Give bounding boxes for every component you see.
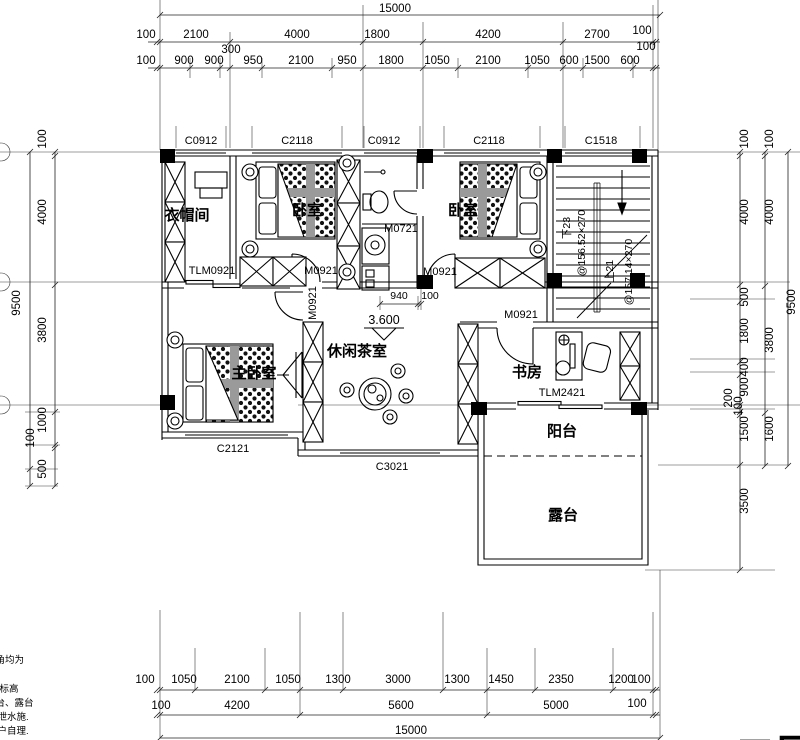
cabinet-icon bbox=[240, 257, 273, 286]
opening-label: C1518 bbox=[585, 135, 617, 147]
dimension-label: 2100 bbox=[475, 55, 501, 67]
opening-label: C0912 bbox=[368, 135, 400, 147]
dimension-label: 950 bbox=[337, 55, 356, 67]
dimension-label: 4000 bbox=[764, 199, 776, 225]
dimension-label: 9500 bbox=[786, 289, 798, 315]
dimension-label: 5000 bbox=[543, 700, 569, 712]
cabinet-icon bbox=[458, 324, 478, 364]
dimension-label: 1500 bbox=[739, 416, 751, 442]
dimension-label: 100 bbox=[421, 290, 439, 302]
stool-icon bbox=[530, 164, 546, 180]
corner-note-label: 层标高 bbox=[0, 683, 19, 695]
dimension-label: 3800 bbox=[764, 327, 776, 353]
stair-note-label: @157.14×270 bbox=[623, 239, 635, 306]
dimension-label: 100 bbox=[136, 29, 155, 41]
cabinet-icon bbox=[620, 366, 640, 400]
column-marker bbox=[632, 149, 647, 163]
dimension-label: 1200 bbox=[608, 674, 634, 686]
dimension-label: 100 bbox=[632, 25, 651, 37]
room-label: 卧室 bbox=[448, 201, 478, 219]
dimension-label: 15000 bbox=[395, 725, 427, 737]
column-marker bbox=[631, 402, 647, 415]
floor-plan-canvas: 1500010021004000180042002700100300100100… bbox=[0, 0, 800, 740]
staircase bbox=[556, 166, 650, 318]
dimension-label: 3500 bbox=[739, 488, 751, 514]
dimension-label: 1050 bbox=[424, 55, 450, 67]
dimension-ticks bbox=[27, 12, 791, 740]
toilet-icon bbox=[370, 191, 388, 213]
dimension-label: 500 bbox=[739, 287, 751, 306]
dimension-label: 1800 bbox=[739, 318, 751, 344]
room-label: 休闲茶室 bbox=[326, 342, 387, 360]
cabinet-icon bbox=[458, 364, 478, 404]
column-marker bbox=[471, 402, 487, 415]
dimension-label: 2100 bbox=[288, 55, 314, 67]
opening-label: C2118 bbox=[281, 135, 313, 147]
dimension-label: 4000 bbox=[37, 199, 49, 225]
dimension-label: 1300 bbox=[444, 674, 470, 686]
dimension-label: 100 bbox=[25, 428, 37, 447]
dimension-label: 600 bbox=[559, 55, 578, 67]
cabinet-icon bbox=[303, 362, 323, 402]
dimension-label: 100 bbox=[627, 698, 646, 710]
room-label: 露台 bbox=[548, 506, 578, 524]
dimension-label: 4200 bbox=[224, 700, 250, 712]
corner-note-label: 地角均为 bbox=[0, 654, 24, 666]
dimension-label: 100 bbox=[764, 129, 776, 148]
dimension-label: 1050 bbox=[171, 674, 197, 686]
dimension-label: 2100 bbox=[224, 674, 250, 686]
dimension-label: 5600 bbox=[388, 700, 414, 712]
cabinet-icon bbox=[165, 242, 185, 282]
stool-icon bbox=[242, 164, 258, 180]
corner-note-label: 用户自理. bbox=[0, 725, 29, 737]
stair-note-label: 下23 bbox=[561, 217, 573, 239]
dimension-label: 1300 bbox=[325, 674, 351, 686]
dimension-label: 900 bbox=[739, 377, 751, 396]
tv-icon bbox=[277, 352, 302, 398]
opening-label: M0721 bbox=[384, 223, 418, 235]
opening-label: TLM0921 bbox=[189, 265, 235, 277]
dimension-label: 400 bbox=[739, 357, 751, 376]
opening-label: C2118 bbox=[473, 135, 505, 147]
monitor-icon bbox=[570, 344, 575, 368]
room-label: 阳台 bbox=[547, 422, 577, 440]
room-label: 卧室 bbox=[292, 201, 322, 219]
dimension-label: 2700 bbox=[584, 29, 610, 41]
dimension-label: 500 bbox=[37, 459, 49, 478]
dimension-label: 1600 bbox=[764, 416, 776, 442]
opening-label: TLM2421 bbox=[539, 387, 585, 399]
cabinet-icon bbox=[455, 258, 500, 288]
cabinet-icon bbox=[337, 203, 360, 246]
dimension-label: 1050 bbox=[275, 674, 301, 686]
opening-label: C0912 bbox=[185, 135, 217, 147]
room-label: 主卧室 bbox=[231, 364, 276, 382]
cabinet-icon bbox=[500, 258, 545, 288]
dimension-label: 1000 bbox=[37, 407, 49, 433]
dimension-label: 100 bbox=[135, 674, 154, 686]
dimension-label: 1800 bbox=[378, 55, 404, 67]
column-marker bbox=[547, 149, 562, 163]
dimension-label: 1050 bbox=[524, 55, 550, 67]
column-marker bbox=[160, 149, 175, 163]
cabinet-icon bbox=[303, 322, 323, 362]
column-marker bbox=[547, 273, 562, 288]
dimension-label: 2350 bbox=[548, 674, 574, 686]
room-label: 衣帽间 bbox=[164, 206, 209, 224]
level-marker bbox=[364, 328, 404, 340]
dimension-label: 100 bbox=[37, 129, 49, 148]
dimension-label: 100 bbox=[739, 129, 751, 148]
dimension-label: 1800 bbox=[364, 29, 390, 41]
cabinet-icon bbox=[273, 257, 306, 286]
stool-icon bbox=[242, 241, 258, 257]
cabinet-icon bbox=[303, 402, 323, 442]
opening-label: M0921 bbox=[423, 266, 457, 278]
floor-plan-page: 1500010021004000180042002700100300100100… bbox=[0, 0, 800, 740]
cabinet-icon bbox=[165, 162, 185, 202]
dimension-label: 100 bbox=[631, 674, 650, 686]
dimension-label: 100 bbox=[151, 700, 170, 712]
dimension-label: 300 bbox=[221, 44, 240, 56]
stool-icon bbox=[530, 241, 546, 257]
dimension-lines bbox=[30, 15, 788, 738]
dimension-label: 15000 bbox=[379, 3, 411, 15]
stool-icon bbox=[339, 155, 355, 171]
dimension-label: 950 bbox=[243, 55, 262, 67]
opening-label: M0921 bbox=[307, 286, 319, 320]
floor-tag-label: 二层 bbox=[735, 733, 800, 740]
bed-right bbox=[460, 162, 540, 239]
opening-label: C3021 bbox=[376, 461, 408, 473]
dimension-label: 3800 bbox=[37, 317, 49, 343]
dimension-label: 4000 bbox=[284, 29, 310, 41]
room-label: 书房 bbox=[512, 363, 542, 381]
bed-left bbox=[256, 162, 335, 239]
study-desk bbox=[556, 332, 612, 380]
dimension-label: 600 bbox=[620, 55, 639, 67]
stool-icon bbox=[167, 332, 183, 348]
dimension-label: 4200 bbox=[475, 29, 501, 41]
stair-note-label: @156.52×270 bbox=[576, 210, 588, 277]
dimension-label: 9500 bbox=[11, 290, 23, 316]
dimension-label: 1450 bbox=[488, 674, 514, 686]
dimension-label: 100 bbox=[636, 41, 655, 53]
dimension-label: 3000 bbox=[385, 674, 411, 686]
level-label: 3.600 bbox=[368, 313, 399, 327]
dimension-label: 100 bbox=[136, 55, 155, 67]
stair-note-label: 上21 bbox=[604, 260, 616, 282]
chair-icon bbox=[582, 341, 612, 373]
dimension-label: 900 bbox=[204, 55, 223, 67]
stool-icon bbox=[167, 413, 183, 429]
opening-label: M0921 bbox=[304, 265, 338, 277]
cabinet-icon bbox=[620, 332, 640, 366]
column-marker bbox=[160, 395, 175, 410]
dimension-label: 900 bbox=[174, 55, 193, 67]
opening-label: C2121 bbox=[217, 443, 249, 455]
dimension-label: 2100 bbox=[183, 29, 209, 41]
dimension-label: 1500 bbox=[584, 55, 610, 67]
tea-table-set bbox=[340, 364, 413, 424]
column-marker bbox=[417, 149, 433, 163]
corner-note-label: 置泄水施. bbox=[0, 711, 29, 723]
corner-note-label: 阳台、露台 bbox=[0, 697, 34, 709]
stool-icon bbox=[339, 264, 355, 280]
dimension-label: 4000 bbox=[739, 199, 751, 225]
dimension-label: 100 bbox=[733, 396, 745, 415]
opening-label: M0921 bbox=[504, 309, 538, 321]
plan-labels: 1500010021004000180042002700100300100100… bbox=[0, 3, 800, 740]
dimension-label: 940 bbox=[390, 290, 408, 302]
bed-master bbox=[183, 344, 273, 422]
cloakroom-table bbox=[195, 172, 227, 198]
